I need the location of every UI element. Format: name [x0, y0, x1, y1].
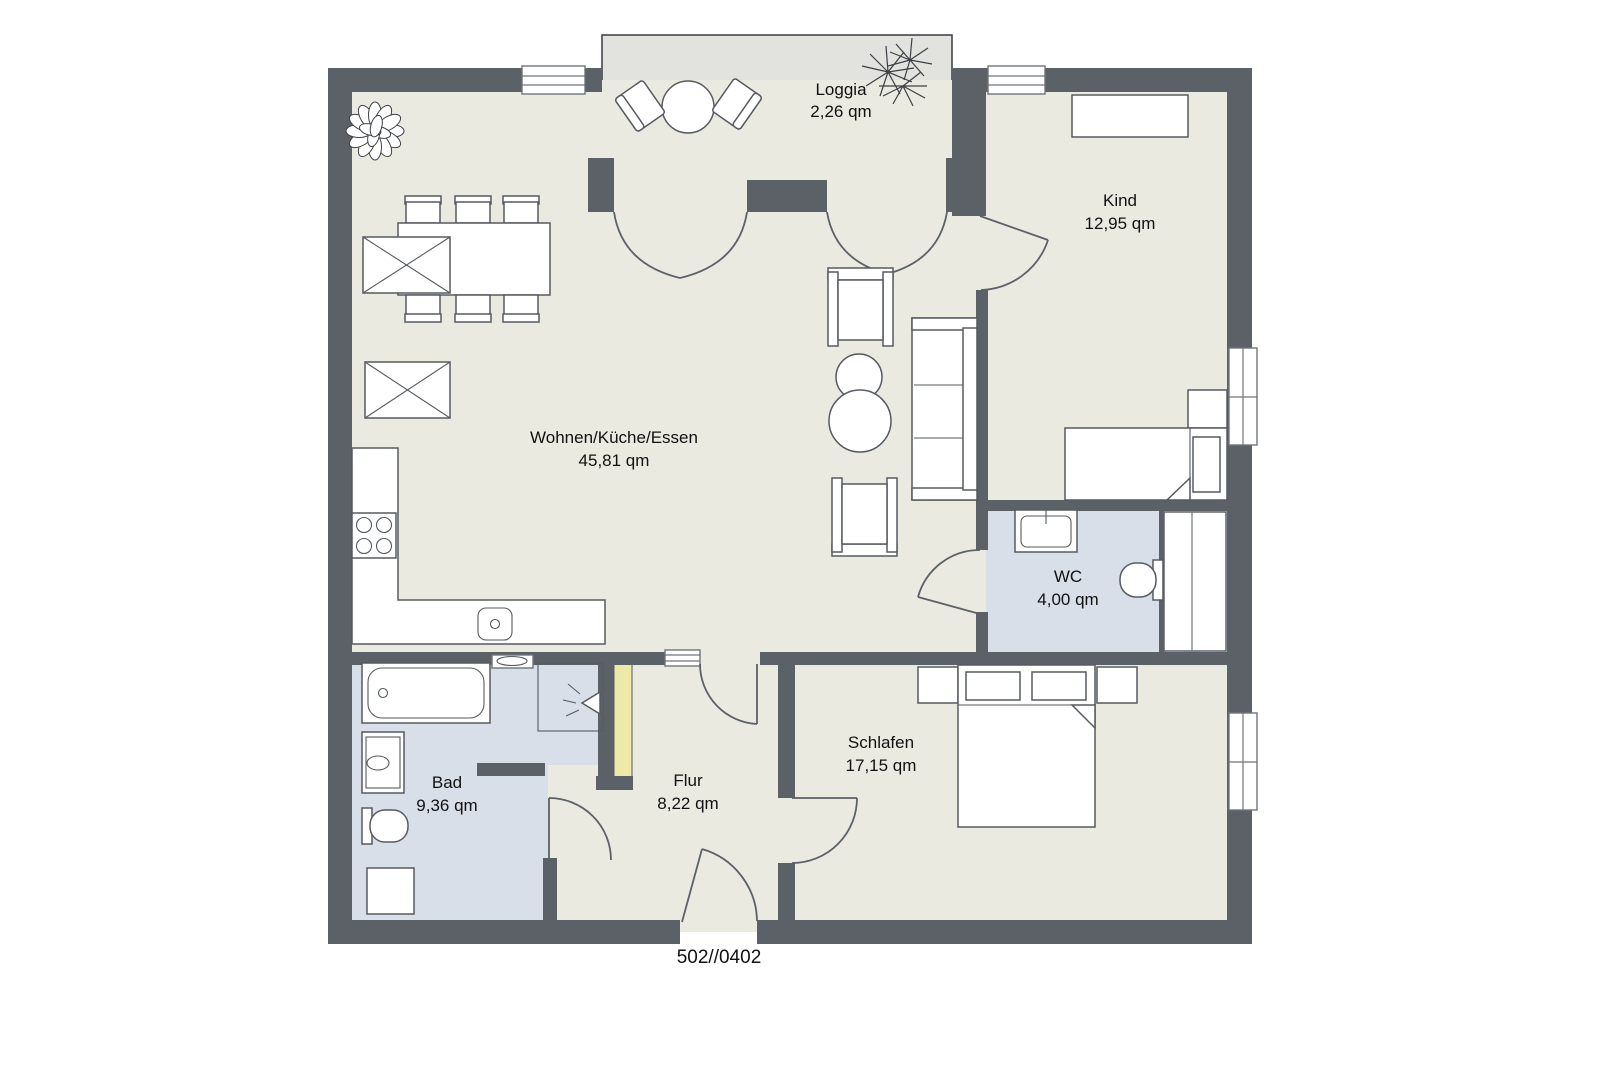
room-name: Flur — [673, 771, 703, 790]
kitchen-stove — [352, 513, 396, 558]
room-name: Schlafen — [848, 733, 914, 752]
window-right-kind — [1229, 348, 1257, 445]
dining-chairs-bottom — [405, 295, 539, 322]
room-area: 17,15 qm — [846, 756, 917, 775]
room-name: Loggia — [815, 80, 867, 99]
room-name: Bad — [432, 773, 462, 792]
floor-plan-page: Loggia 2,26 qm Kind 12,95 qm Wohnen/Küch… — [0, 0, 1600, 1065]
svg-text:502//0402: 502//0402 — [677, 947, 762, 968]
vent-bad-wall — [492, 655, 533, 668]
bad-washbasin — [362, 732, 404, 793]
plan-number-label: 502//0402 — [677, 947, 762, 968]
floor-plan-canvas: Loggia 2,26 qm Kind 12,95 qm Wohnen/Küch… — [0, 0, 1600, 1065]
kind-nightstand — [1188, 390, 1227, 428]
bad-toilet — [362, 808, 408, 844]
room-name: Kind — [1103, 191, 1137, 210]
hallway-accent-strip — [614, 660, 632, 778]
schlafen-nightstand-left — [918, 667, 958, 703]
dining-chairs-top — [405, 196, 539, 223]
room-name: Wohnen/Küche/Essen — [530, 428, 698, 447]
room-area: 4,00 qm — [1037, 590, 1098, 609]
wc-washbasin — [1015, 510, 1077, 552]
room-area: 12,95 qm — [1085, 214, 1156, 233]
loggia-table — [662, 81, 714, 133]
bathtub — [362, 663, 490, 723]
sideboard-x-1 — [363, 237, 450, 293]
threshold-flur-wohnen — [665, 650, 700, 666]
duct-shaft — [1164, 512, 1226, 651]
room-area: 45,81 qm — [579, 451, 650, 470]
kind-bed — [1065, 428, 1227, 500]
window-right-schlafen — [1229, 713, 1257, 810]
schlafen-bed — [958, 665, 1095, 827]
wc-toilet — [1120, 560, 1163, 600]
room-area: 9,36 qm — [416, 796, 477, 815]
room-area: 2,26 qm — [810, 102, 871, 121]
room-name: WC — [1054, 567, 1082, 586]
schlafen-nightstand-right — [1097, 667, 1137, 703]
sideboard-x-2 — [365, 362, 450, 418]
armchair-bottom — [832, 478, 897, 556]
armchair-top — [828, 268, 893, 346]
window-top-kind — [988, 66, 1045, 94]
window-top-left — [522, 66, 585, 94]
sofa — [912, 318, 977, 500]
kind-wardrobe — [1072, 95, 1188, 137]
washing-machine — [367, 868, 414, 914]
room-area: 8,22 qm — [657, 794, 718, 813]
